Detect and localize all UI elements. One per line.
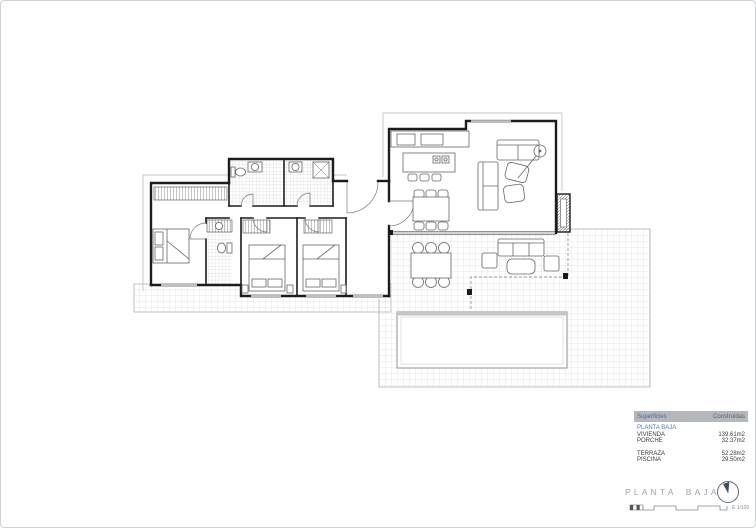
row-label: PORCHE <box>637 438 663 445</box>
scale-bar-icon <box>629 502 729 514</box>
outdoor-dining-set <box>411 243 451 288</box>
row-label: VIVIENDA <box>637 432 665 439</box>
bed-bedroom-1 <box>153 229 189 263</box>
row-label: PISCINA <box>637 457 661 464</box>
row-value: 139.61m2 <box>718 432 745 439</box>
toilet-icon <box>218 243 233 253</box>
scale-label: E 1/100 <box>732 505 749 511</box>
legend-row-terraza: TERRAZA 52.28m2 <box>637 451 745 458</box>
title-block: PLANTA BAJA E 1/100 <box>619 477 751 521</box>
graphic-scale-bar: E 1/100 <box>629 502 749 514</box>
sink-icon <box>289 162 302 172</box>
legend-row-vivienda: VIVIENDA 139.61m2 <box>637 432 745 439</box>
bed-bedroom-2 <box>242 245 293 293</box>
light-marker <box>563 273 568 279</box>
sink-icon <box>248 162 262 172</box>
swimming-pool <box>397 312 567 368</box>
legend-section-title: PLANTA BAJA <box>637 425 745 432</box>
legend-row-porche: PORCHE 32.37m2 <box>637 438 745 445</box>
fireplace <box>557 194 570 232</box>
plan-title: PLANTA BAJA <box>625 487 720 497</box>
row-label: TERRAZA <box>637 451 665 458</box>
sofa-west <box>478 162 498 210</box>
legend-col-construidas: Construidas <box>713 414 745 420</box>
sink-icon <box>215 222 222 229</box>
row-value: 52.28m2 <box>722 451 745 458</box>
kitchen-island <box>403 153 455 172</box>
row-value: 32.37m2 <box>722 438 745 445</box>
row-value: 29.50m2 <box>722 457 745 464</box>
toilet-icon <box>231 167 246 177</box>
drawing-sheet: Superficies Construidas PLANTA BAJA VIVI… <box>0 0 756 528</box>
legend-body: PLANTA BAJA VIVIENDA 139.61m2 PORCHE 32.… <box>634 422 748 464</box>
bar-stools <box>408 174 441 181</box>
legend-col-superficies: Superficies <box>637 414 667 420</box>
legend-header: Superficies Construidas <box>634 411 748 422</box>
sofa-north <box>497 140 539 160</box>
light-marker <box>467 289 472 295</box>
legend-row-piscina: PISCINA 29.50m2 <box>637 457 745 464</box>
dining-table-indoor <box>413 190 449 230</box>
areas-legend-table: Superficies Construidas PLANTA BAJA VIVI… <box>634 411 748 464</box>
shower-icon <box>313 162 329 178</box>
